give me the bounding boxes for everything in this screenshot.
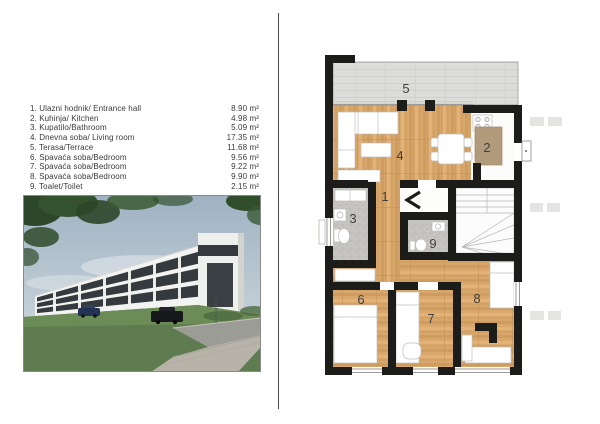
room-area: 5.09 m² xyxy=(231,123,259,133)
room-list: 1. Ulazni hodnik/ Entrance hall 8.90 m² … xyxy=(30,104,259,191)
coffee-table xyxy=(361,143,391,157)
room-terrace xyxy=(333,62,518,105)
toilet xyxy=(410,241,415,250)
window xyxy=(352,367,382,375)
toilet xyxy=(416,239,427,251)
floor-plan: 5 4 2 1 3 9 6 7 8 xyxy=(317,55,600,380)
room-name: 1. Ulazni hodnik/ Entrance hall xyxy=(30,104,141,114)
room-name: 5. Terasa/Terrace xyxy=(30,143,93,153)
room-label-6: 6 xyxy=(357,292,364,307)
brochure-page: 1. Ulazni hodnik/ Entrance hall 8.90 m² … xyxy=(0,0,600,424)
kitchen-door xyxy=(514,141,531,161)
terrace-post xyxy=(425,100,435,111)
room-name: 4. Dnevna soba/ Living room xyxy=(30,133,135,143)
bush xyxy=(203,311,243,321)
room-area: 11.68 m² xyxy=(227,143,259,153)
room-name: 8. Spavaća soba/Bedroom xyxy=(30,172,127,182)
wardrobe xyxy=(335,269,375,281)
toilet xyxy=(339,229,350,244)
room-area: 8.90 m² xyxy=(231,104,259,114)
wall-stub xyxy=(475,323,497,331)
room-list-item: 8. Spavaća soba/Bedroom 9.90 m² xyxy=(30,172,259,182)
room-area: 9.22 m² xyxy=(231,162,259,172)
wardrobe xyxy=(462,335,472,361)
room-list-item: 3. Kupatilo/Bathroom 5.09 m² xyxy=(30,123,259,133)
room-list-item: 9. Toalet/Toilet 2.15 m² xyxy=(30,182,259,192)
adjacent-unit-marks xyxy=(530,117,562,320)
wall-stub xyxy=(489,331,497,343)
window xyxy=(413,367,438,375)
room-name: 7. Spavaća soba/Bedroom xyxy=(30,162,127,172)
sofa xyxy=(338,112,355,168)
room-label-9: 9 xyxy=(429,236,436,251)
ground xyxy=(23,305,261,372)
desk xyxy=(403,343,421,359)
room-list-item: 5. Terasa/Terrace 11.68 m² xyxy=(30,143,259,153)
bath-shelf xyxy=(335,190,366,201)
room-name: 9. Toalet/Toilet xyxy=(30,182,83,192)
bed xyxy=(490,262,514,308)
terrace-post xyxy=(397,100,407,111)
room-label-2: 2 xyxy=(483,140,490,155)
room-area: 9.90 m² xyxy=(231,172,259,182)
room-area: 17.35 m² xyxy=(227,133,259,143)
window xyxy=(514,282,522,306)
room-list-item: 4. Dnevna soba/ Living room 17.35 m² xyxy=(30,133,259,143)
room-name: 2. Kuhinja/ Kitchen xyxy=(30,114,99,124)
room-name: 3. Kupatilo/Bathroom xyxy=(30,123,107,133)
entrance-door xyxy=(418,180,436,188)
door xyxy=(418,282,438,290)
room-label-8: 8 xyxy=(473,291,480,306)
bed xyxy=(334,305,377,363)
door xyxy=(380,282,394,290)
room-list-item: 7. Spavaća soba/Bedroom 9.22 m² xyxy=(30,162,259,172)
room-area: 4.98 m² xyxy=(231,114,259,124)
room-name: 6. Spavaća soba/Bedroom xyxy=(30,153,127,163)
room-label-5: 5 xyxy=(402,81,409,96)
room-list-item: 6. Spavaća soba/Bedroom 9.56 m² xyxy=(30,153,259,163)
sink xyxy=(432,222,445,231)
room-label-7: 7 xyxy=(427,311,434,326)
window xyxy=(319,218,333,246)
building-photo xyxy=(23,195,261,372)
room-list-item: 2. Kuhinja/ Kitchen 4.98 m² xyxy=(30,114,259,124)
room-area: 2.15 m² xyxy=(231,182,259,192)
sink xyxy=(334,209,346,221)
room-label-4: 4 xyxy=(396,148,403,163)
room-area: 9.56 m² xyxy=(231,153,259,163)
divider-line xyxy=(278,13,279,409)
room-label-3: 3 xyxy=(349,211,356,226)
room-label-1: 1 xyxy=(381,189,388,204)
room-list-item: 1. Ulazni hodnik/ Entrance hall 8.90 m² xyxy=(30,104,259,114)
window xyxy=(455,367,510,375)
